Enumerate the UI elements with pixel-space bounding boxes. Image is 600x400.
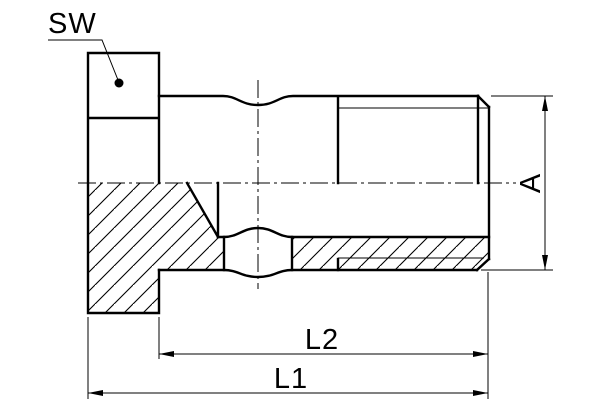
label-a: A [515,173,547,193]
arrow-l1-left [88,390,103,396]
sw-leader-line [48,40,118,80]
arrow-l2-right [473,351,488,357]
label-l1: L1 [274,363,308,395]
shank-bottom-with-hole-bump [159,270,477,277]
technical-drawing: SW A L2 L1 [0,0,600,400]
label-sw: SW [48,8,97,40]
arrow-a-bottom [542,255,548,270]
arrow-l2-left [159,351,174,357]
bore-line-with-breakout-arc [218,228,489,237]
hatch-right-wall [292,237,489,270]
arrow-l1-right [473,390,488,396]
arrow-a-top [542,96,548,111]
drawing-canvas: SW A L2 L1 [0,0,600,400]
shank-top-with-hole-dip [159,96,478,105]
sw-leader-dot [115,79,124,88]
hatch-head-and-left-wall [89,183,224,313]
label-l2: L2 [305,324,339,356]
section-hatching [89,183,489,313]
